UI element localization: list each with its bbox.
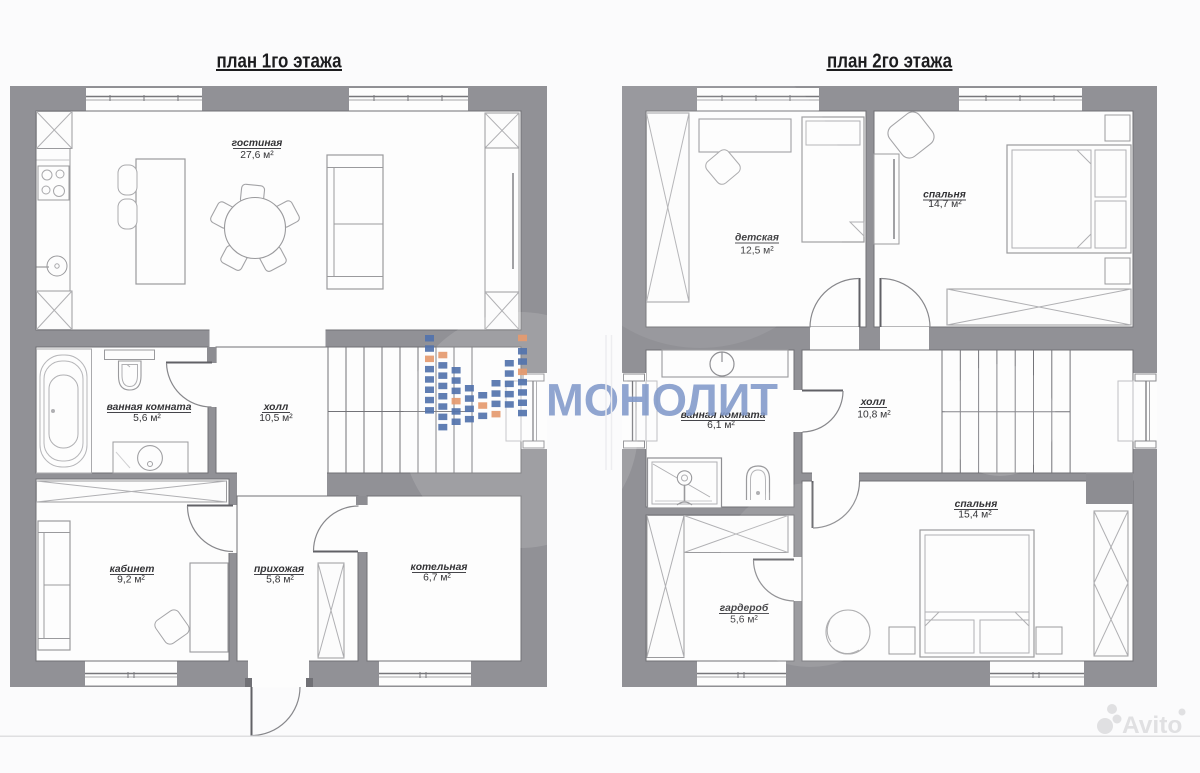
svg-text:15,4 м²: 15,4 м² bbox=[958, 510, 992, 521]
svg-text:9,2 м²: 9,2 м² bbox=[117, 575, 145, 586]
svg-text:6,7 м²: 6,7 м² bbox=[423, 573, 451, 584]
svg-text:холл: холл bbox=[263, 402, 289, 413]
svg-text:5,6 м²: 5,6 м² bbox=[133, 413, 161, 424]
svg-text:Avito: Avito bbox=[1122, 712, 1182, 739]
svg-text:27,6 м²: 27,6 м² bbox=[240, 150, 274, 161]
svg-text:10,5 м²: 10,5 м² bbox=[259, 413, 293, 424]
svg-text:холл: холл bbox=[860, 397, 886, 408]
svg-text:спальня: спальня bbox=[955, 499, 998, 510]
svg-text:ванная комната: ванная комната bbox=[107, 402, 192, 413]
svg-text:кабинет: кабинет bbox=[110, 563, 155, 575]
svg-text:котельная: котельная bbox=[411, 562, 468, 573]
svg-text:гостиная: гостиная bbox=[232, 138, 283, 149]
svg-text:14,7 м²: 14,7 м² bbox=[928, 199, 962, 210]
svg-text:прихожая: прихожая bbox=[254, 564, 304, 575]
svg-text:5,8 м²: 5,8 м² bbox=[266, 575, 294, 586]
svg-text:МОНОЛИТ: МОНОЛИТ bbox=[546, 375, 778, 426]
svg-text:10,8 м²: 10,8 м² bbox=[857, 410, 891, 421]
